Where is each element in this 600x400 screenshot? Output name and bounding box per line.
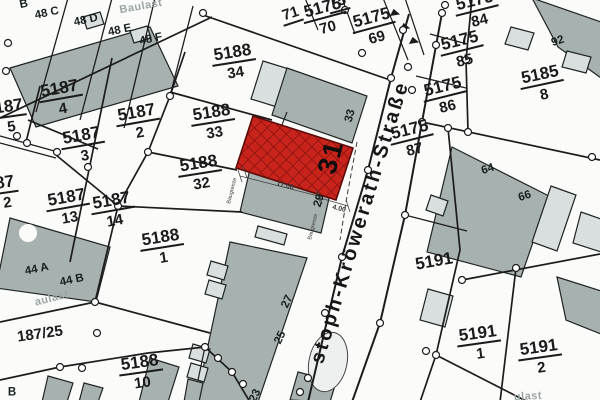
parcel-subnumber: 4 [57,99,68,117]
parcel-subnumber: 33 [205,122,224,141]
parcel-subnumber: 32 [192,173,211,192]
parcel-subnumber: 2 [2,193,13,211]
parcel-label-5188-33: 518833 [188,100,237,143]
parcel-label-5188-32: 518832 [175,151,224,194]
parcel-label-5191-1: 51911 [455,322,504,365]
parcel-subnumber: 69 [366,26,387,47]
parcel-subnumber: 1 [158,248,169,266]
parcel-subnumber: 2 [134,123,145,141]
parcel-subnumber: 5 [6,117,17,135]
parcel-label-5187-2: 51872 [113,100,163,144]
cadastral-map: 518834 518833 518832 51881 518810 51874 … [0,0,600,400]
courtyard-mark [19,224,37,242]
parcel-label-5187-14: 518714 [88,188,138,232]
building-bottom-right [557,277,600,334]
parcel-subnumber: 70 [317,16,338,37]
parcel-label-5187-4: 51874 [36,76,86,120]
house-number-b-partial: B [8,387,16,399]
parcel-subnumber: 8 [538,85,550,103]
parcel-label-5188-10: 518810 [117,351,166,394]
parcel-subnumber: 2 [536,358,547,376]
parcel-label-5187-3: 51873 [58,123,108,167]
parcel-subnumber: 1 [475,344,486,362]
parcel-label-187-5: 1875 [0,95,30,136]
parcel-label-5188-1: 51881 [137,225,186,268]
parcel-subnumber: 10 [133,372,152,391]
house-number-48b-partial: B [19,0,30,11]
parcel-label-5188-34: 518834 [209,40,258,83]
parcel-subnumber: 14 [105,210,124,230]
parcel-label-5187-13: 518713 [43,185,93,229]
parcel-number: 87 [0,172,19,195]
parcel-subnumber: 86 [437,95,457,116]
parcel-label-5191-2: 51912 [516,336,565,379]
parcel-subnumber: 13 [60,207,79,227]
parcel-subnumber: 87 [404,138,424,159]
baulast-note-bottom: ulast [514,391,543,400]
parcel-subnumber: 34 [226,62,245,81]
parcel-subnumber: 3 [79,146,90,164]
parcel-subnumber: 85 [454,49,474,70]
